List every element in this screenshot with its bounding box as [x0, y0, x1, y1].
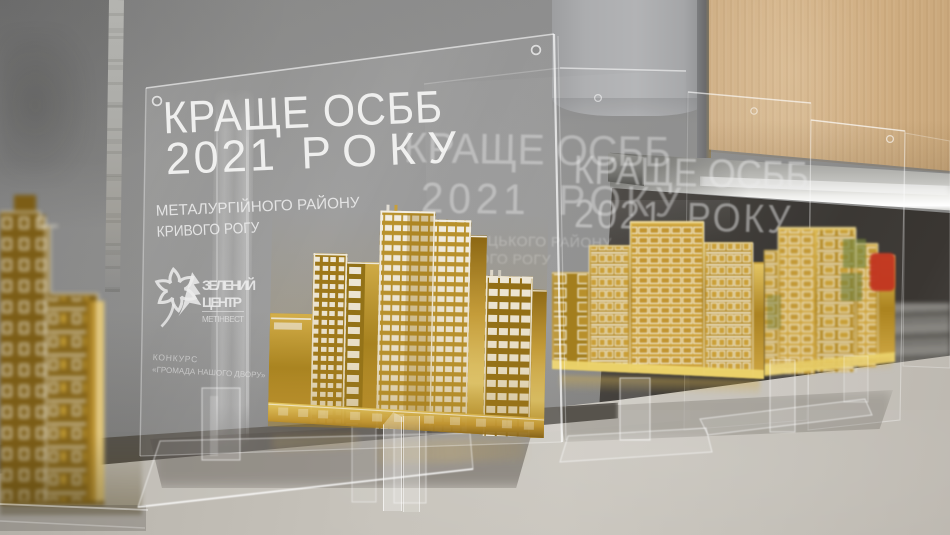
svg-text:МЕТІНВЕСТ: МЕТІНВЕСТ: [202, 315, 244, 324]
svg-text:ЗЕЛЕНИЙ: ЗЕЛЕНИЙ: [202, 276, 256, 293]
svg-text:ЦЕНТР: ЦЕНТР: [202, 294, 242, 310]
